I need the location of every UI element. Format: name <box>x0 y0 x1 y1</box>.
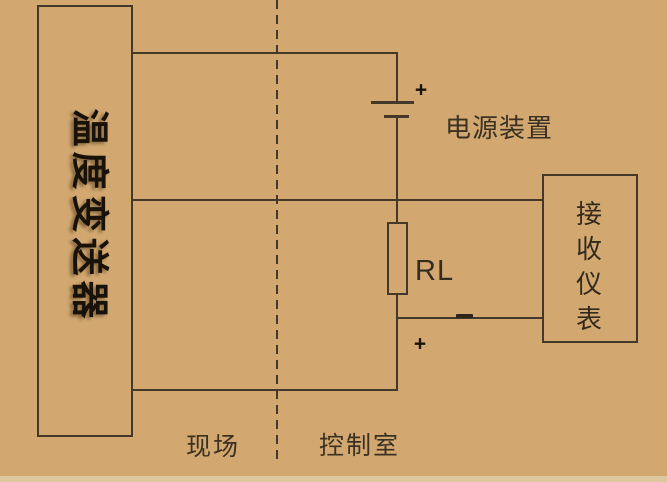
loop-plus-sign: + <box>414 334 426 355</box>
power-supply-label: 电源装置 <box>445 108 553 145</box>
loop-minus-mark <box>456 314 473 318</box>
wire-middle-horizontal <box>133 199 542 201</box>
wire-return-vertical <box>396 317 398 391</box>
wire-resistor-bottom-lead <box>396 294 398 319</box>
battery-plus-sign: + <box>415 80 427 101</box>
wire-top-vertical <box>396 52 398 103</box>
wire-top-horizontal <box>133 52 398 54</box>
scan-bottom-strip <box>0 476 667 482</box>
wire-battery-to-middle <box>396 118 398 201</box>
zone-separator-dashed-line <box>276 0 278 461</box>
battery-plate-long <box>371 101 414 104</box>
field-zone-label: 现场 <box>186 427 240 463</box>
wire-bottom-horizontal <box>133 389 398 391</box>
receiver-label: 接收仪表 <box>572 197 606 337</box>
wiring-diagram: 温度变送器 + 电源装置 RL + 接收仪表 现场 控制室 <box>0 0 667 482</box>
transmitter-label: 温度变送器 <box>66 108 121 323</box>
control-room-zone-label: 控制室 <box>319 426 400 462</box>
load-resistor-icon <box>387 222 408 295</box>
load-resistor-label: RL <box>415 255 454 288</box>
wire-resistor-top-lead <box>396 200 398 223</box>
